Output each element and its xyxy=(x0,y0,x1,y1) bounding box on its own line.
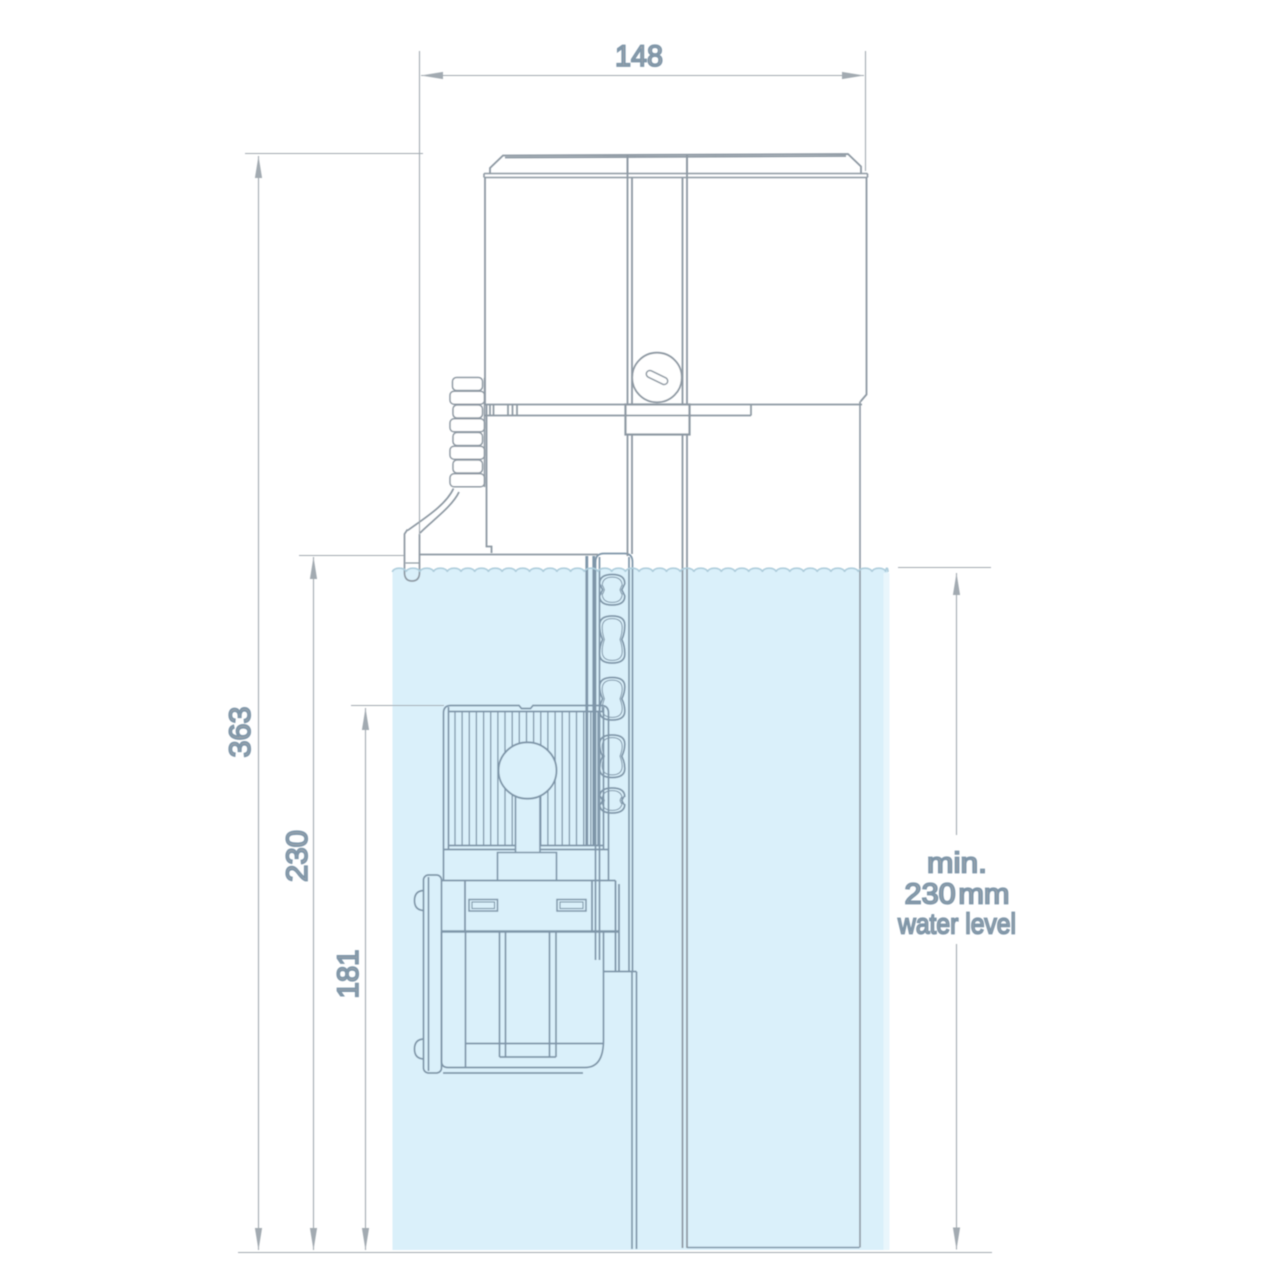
svg-text:water level: water level xyxy=(897,909,1016,941)
svg-text:230 mm: 230 mm xyxy=(905,879,1010,911)
svg-text:230: 230 xyxy=(281,830,314,882)
svg-text:min.: min. xyxy=(927,848,987,880)
svg-text:148: 148 xyxy=(615,40,663,73)
svg-text:363: 363 xyxy=(224,707,257,758)
svg-text:181: 181 xyxy=(332,950,365,999)
